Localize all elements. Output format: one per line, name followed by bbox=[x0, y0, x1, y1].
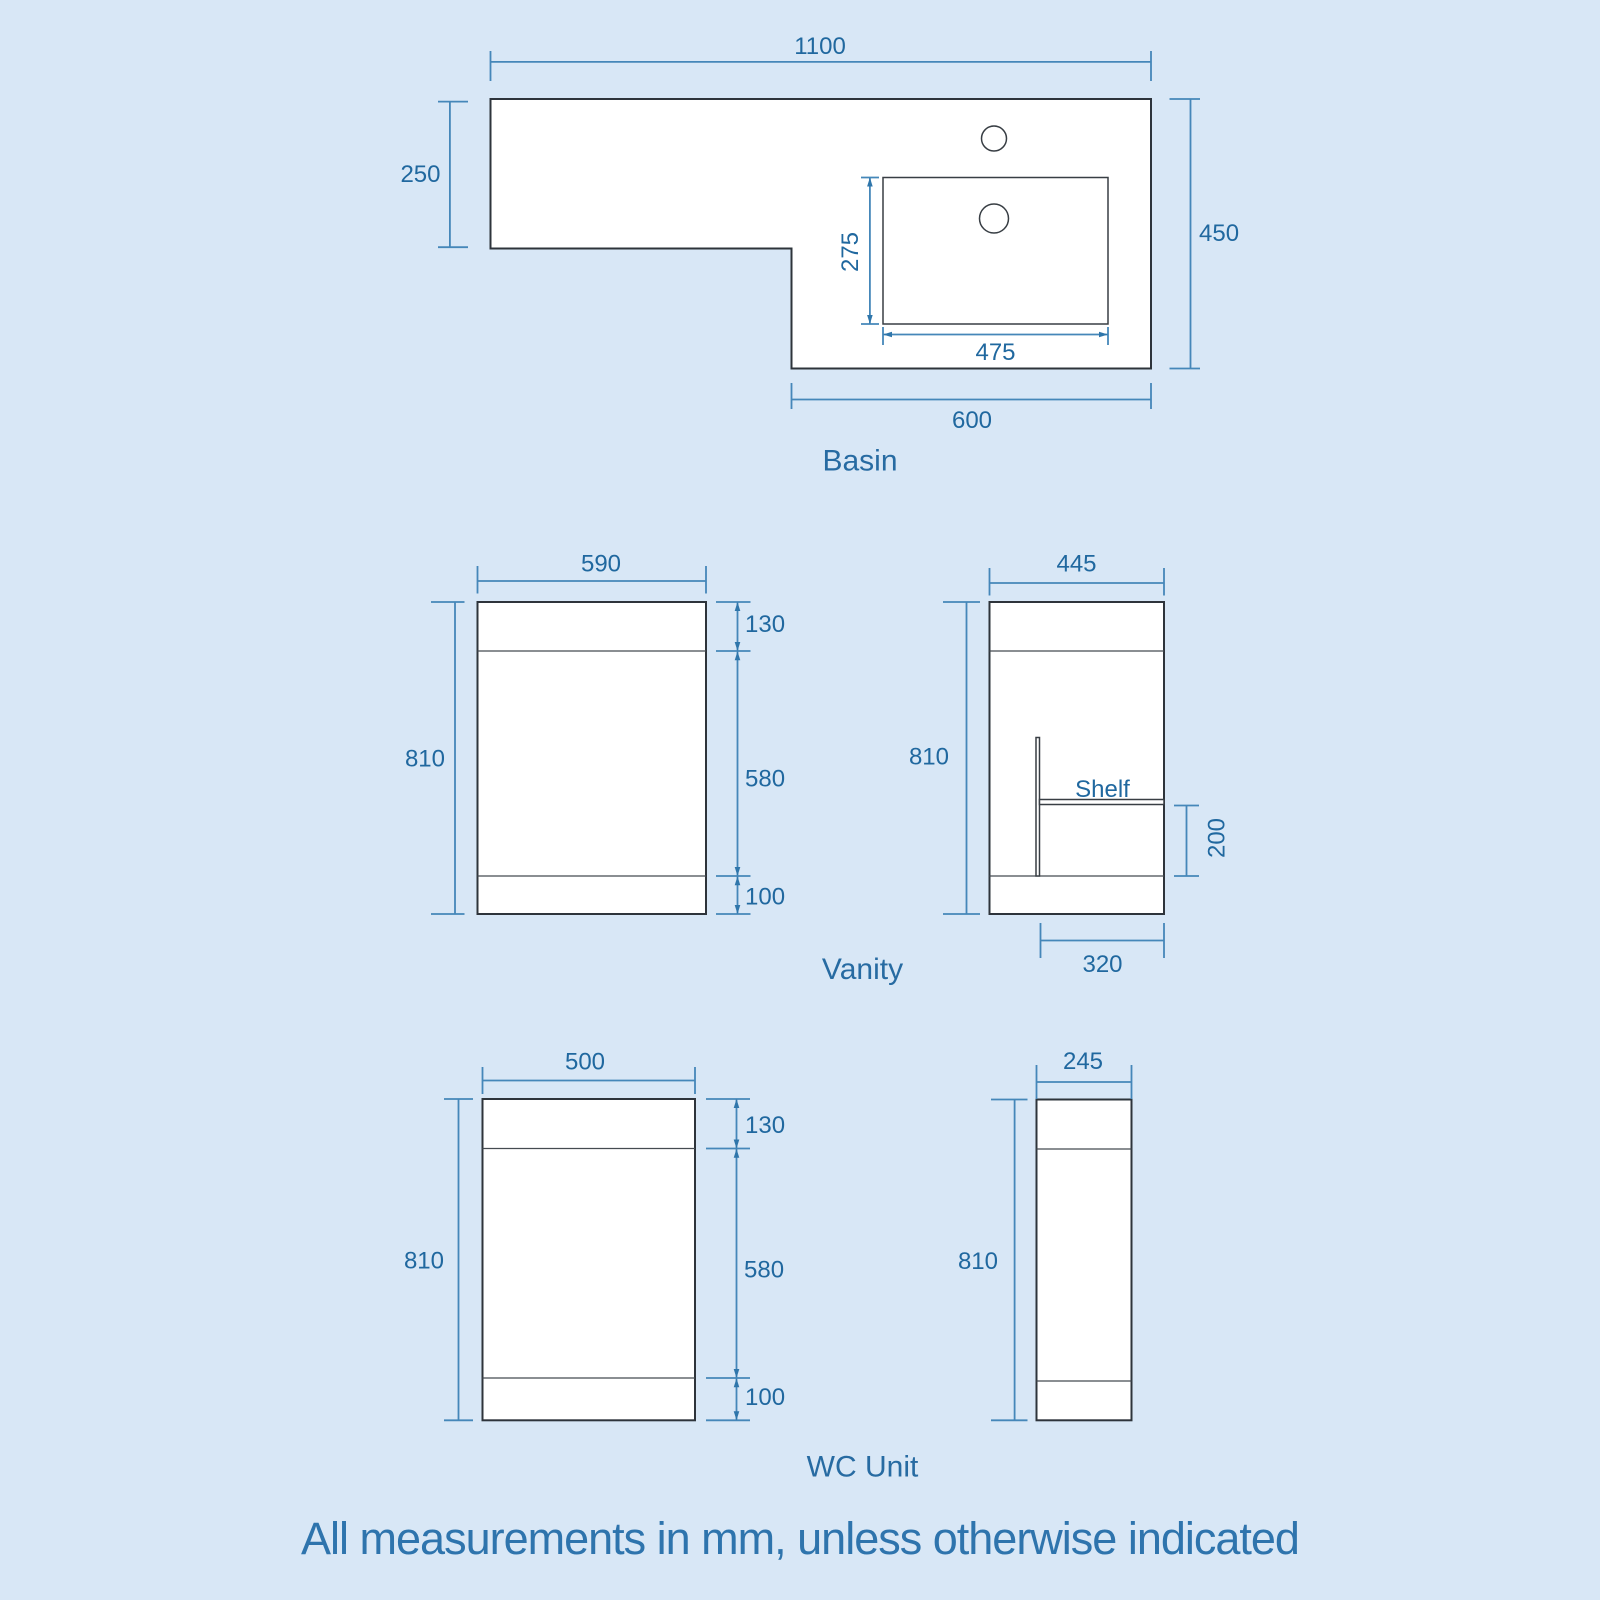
svg-text:500: 500 bbox=[565, 1049, 605, 1076]
svg-text:Vanity: Vanity bbox=[822, 953, 903, 986]
svg-text:475: 475 bbox=[975, 339, 1015, 366]
svg-text:100: 100 bbox=[745, 884, 785, 911]
svg-text:130: 130 bbox=[745, 1112, 785, 1139]
svg-text:100: 100 bbox=[745, 1384, 785, 1411]
svg-text:Basin: Basin bbox=[822, 445, 897, 478]
svg-text:200: 200 bbox=[1204, 818, 1231, 858]
svg-text:130: 130 bbox=[745, 611, 785, 638]
svg-text:810: 810 bbox=[909, 744, 949, 771]
svg-text:450: 450 bbox=[1199, 220, 1239, 247]
svg-text:WC Unit: WC Unit bbox=[807, 1451, 919, 1484]
svg-text:810: 810 bbox=[404, 1248, 444, 1275]
svg-text:445: 445 bbox=[1056, 551, 1096, 578]
svg-text:810: 810 bbox=[958, 1248, 998, 1275]
svg-text:810: 810 bbox=[405, 746, 445, 773]
svg-text:600: 600 bbox=[952, 407, 992, 434]
svg-text:All measurements in mm, unless: All measurements in mm, unless otherwise… bbox=[301, 1513, 1299, 1564]
svg-text:275: 275 bbox=[837, 232, 864, 272]
svg-text:320: 320 bbox=[1082, 951, 1122, 978]
svg-text:Shelf: Shelf bbox=[1075, 776, 1130, 803]
svg-text:245: 245 bbox=[1063, 1048, 1103, 1075]
svg-text:580: 580 bbox=[745, 766, 785, 793]
svg-text:590: 590 bbox=[581, 551, 621, 578]
svg-text:250: 250 bbox=[400, 161, 440, 188]
svg-text:1100: 1100 bbox=[794, 33, 846, 60]
svg-text:580: 580 bbox=[744, 1257, 784, 1284]
